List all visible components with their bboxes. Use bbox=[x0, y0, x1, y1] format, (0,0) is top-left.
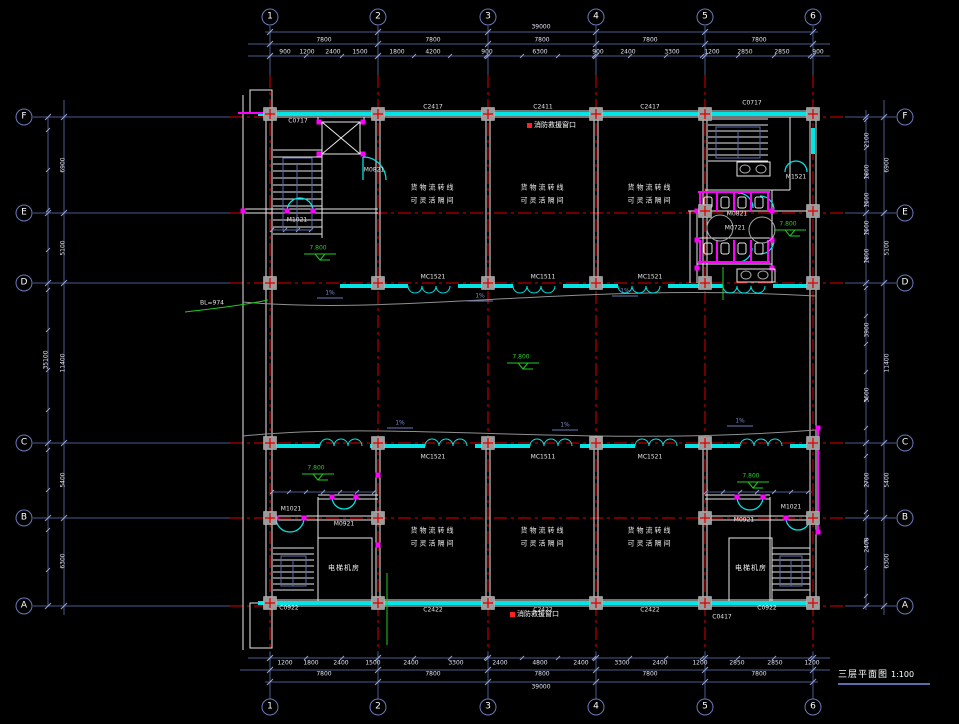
dim-detail-top: 2400 bbox=[620, 49, 635, 56]
grid-bubble-row-E-right: E bbox=[897, 205, 914, 222]
level-value: 7.800 bbox=[512, 354, 529, 361]
grid-bubble-col-1-top: 1 bbox=[262, 9, 279, 26]
fire-rescue-window-label: 消防救援窗口 bbox=[510, 609, 559, 619]
dim-detail-top: 2850 bbox=[774, 49, 789, 56]
dim-detail-bottom: 2400 bbox=[403, 660, 418, 667]
dim-detail-bottom: 2850 bbox=[729, 660, 744, 667]
fixture-layer bbox=[238, 113, 821, 548]
grid-bubble-col-5-top: 5 bbox=[697, 9, 714, 26]
window-tag: C2417 bbox=[423, 104, 442, 111]
room-label: 货物流转线可灵活隔间 bbox=[411, 525, 456, 552]
dim-bay-bottom: 7800 bbox=[316, 671, 331, 678]
dim-detail-bottom: 3300 bbox=[448, 660, 463, 667]
window-tag: C0417 bbox=[712, 614, 731, 621]
dim-detail-top: 2850 bbox=[737, 49, 752, 56]
slope-label: 1% bbox=[395, 420, 405, 427]
window-tag: C0717 bbox=[288, 118, 307, 125]
dim-detail-top: 900 bbox=[279, 49, 290, 56]
window-tag: C2422 bbox=[423, 607, 442, 614]
dim-bay-right: 5400 bbox=[884, 472, 891, 487]
folding-door-tag: MC1511 bbox=[531, 274, 556, 281]
dim-bay-top: 7800 bbox=[425, 37, 440, 44]
dim-bay-right: 5100 bbox=[884, 240, 891, 255]
window-tag: C0717 bbox=[742, 100, 761, 107]
dim-bay-right: 6300 bbox=[884, 553, 891, 568]
dim-detail-top: 3300 bbox=[664, 49, 679, 56]
dim-detail-bottom: 3300 bbox=[614, 660, 629, 667]
level-value: 7.800 bbox=[779, 221, 796, 228]
slope-label: 1% bbox=[475, 293, 485, 300]
dim-bay-top: 7800 bbox=[751, 37, 766, 44]
grid-bubble-row-C-right: C bbox=[897, 435, 914, 452]
dim-detail-bottom: 2400 bbox=[652, 660, 667, 667]
grid-bubble-col-3-top: 3 bbox=[480, 9, 497, 26]
dim-bay-bottom: 7800 bbox=[425, 671, 440, 678]
folding-door-tag: MC1511 bbox=[531, 454, 556, 461]
dim-detail-bottom: 1200 bbox=[804, 660, 819, 667]
machine-room-label: 电梯机房 bbox=[735, 563, 767, 573]
dim-overall-bottom: 39000 bbox=[531, 684, 550, 691]
dim-detail-top: 1200 bbox=[704, 49, 719, 56]
dim-detail-top: 1200 bbox=[299, 49, 314, 56]
dim-bay-top: 7800 bbox=[642, 37, 657, 44]
dim-detail-right: 2700 bbox=[864, 472, 871, 487]
dim-detail-right: 1500 bbox=[864, 192, 871, 207]
folding-door-tag: MC1521 bbox=[638, 454, 663, 461]
grid-bubble-col-1-bottom: 1 bbox=[262, 699, 279, 716]
door-tag: M1021 bbox=[281, 506, 301, 513]
room-label: 货物流转线可灵活隔间 bbox=[411, 182, 456, 209]
slope-label: 1% bbox=[325, 290, 335, 297]
floor-plan-drawing bbox=[0, 0, 959, 724]
dim-detail-bottom: 2850 bbox=[767, 660, 782, 667]
grid-bubble-col-4-top: 4 bbox=[588, 9, 605, 26]
dim-detail-bottom: 1200 bbox=[692, 660, 707, 667]
door-tag: M0821 bbox=[727, 211, 747, 218]
dim-bay-right: 11400 bbox=[884, 353, 891, 372]
drawing-title-block: 三层平面图1:100 bbox=[838, 662, 930, 685]
grid-bubble-row-C-left: C bbox=[16, 435, 33, 452]
dim-bay-top: 7800 bbox=[534, 37, 549, 44]
cad-floor-plan-canvas: 112233445566FFEEDDCCBBAA货物流转线可灵活隔间货物流转线可… bbox=[0, 0, 959, 724]
dim-detail-top: 4200 bbox=[425, 49, 440, 56]
grid-bubble-col-5-bottom: 5 bbox=[697, 699, 714, 716]
grid-bubble-row-A-left: A bbox=[16, 598, 33, 615]
dim-bay-left: 5400 bbox=[60, 472, 67, 487]
dim-bay-left: 11400 bbox=[60, 353, 67, 372]
dim-detail-top: 1800 bbox=[389, 49, 404, 56]
room-label: 货物流转线可灵活隔间 bbox=[628, 525, 673, 552]
window-tag: C2422 bbox=[640, 607, 659, 614]
grid-bubble-row-F-left: F bbox=[16, 109, 33, 126]
window-tag: C2417 bbox=[640, 104, 659, 111]
door-tag: M1021 bbox=[781, 504, 801, 511]
dim-detail-top: 900 bbox=[481, 49, 492, 56]
grid-bubble-col-6-bottom: 6 bbox=[805, 699, 822, 716]
dim-detail-right: 3900 bbox=[864, 322, 871, 337]
dim-detail-bottom: 2400 bbox=[492, 660, 507, 667]
dim-bay-left: 5100 bbox=[60, 240, 67, 255]
grid-bubble-col-4-bottom: 4 bbox=[588, 699, 605, 716]
dim-detail-right: 1500 bbox=[864, 220, 871, 235]
slope-label: 1% bbox=[560, 422, 570, 429]
dim-detail-right: 2400 bbox=[864, 537, 871, 552]
drawing-scale: 1:100 bbox=[891, 670, 914, 679]
dim-detail-bottom: 4800 bbox=[532, 660, 547, 667]
rescue-window-icon bbox=[510, 612, 515, 617]
folding-door-tag: MC1521 bbox=[421, 274, 446, 281]
dim-bay-bottom: 7800 bbox=[534, 671, 549, 678]
window-tag: C2411 bbox=[533, 104, 552, 111]
dim-bay-bottom: 7800 bbox=[642, 671, 657, 678]
window-tag: C0922 bbox=[279, 605, 298, 612]
door-tag: M0821 bbox=[364, 167, 384, 174]
door-tag: M1521 bbox=[786, 174, 806, 181]
dim-bay-right: 6900 bbox=[884, 157, 891, 172]
grid-bubble-col-2-bottom: 2 bbox=[370, 699, 387, 716]
grid-bubble-row-D-left: D bbox=[16, 275, 33, 292]
room-label: 货物流转线可灵活隔间 bbox=[521, 182, 566, 209]
door-tag: M0921 bbox=[734, 517, 754, 524]
dim-detail-top: 900 bbox=[592, 49, 603, 56]
dim-detail-bottom: 1500 bbox=[365, 660, 380, 667]
machine-room-label: 电梯机房 bbox=[328, 563, 360, 573]
folding-door-tag: MC1521 bbox=[421, 454, 446, 461]
slope-label: 1% bbox=[735, 418, 745, 425]
grid-bubble-row-E-left: E bbox=[16, 205, 33, 222]
dim-bay-bottom: 7800 bbox=[751, 671, 766, 678]
dim-detail-bottom: 1800 bbox=[303, 660, 318, 667]
dim-bay-left: 6300 bbox=[60, 553, 67, 568]
title-underline bbox=[838, 683, 930, 685]
grid-bubble-row-A-right: A bbox=[897, 598, 914, 615]
misc-label: BL=974 bbox=[200, 300, 224, 307]
level-value: 7.800 bbox=[742, 473, 759, 480]
dim-bay-left: 6900 bbox=[60, 157, 67, 172]
rescue-window-icon bbox=[527, 123, 532, 128]
grid-bubble-col-2-top: 2 bbox=[370, 9, 387, 26]
grid-bubble-row-D-right: D bbox=[897, 275, 914, 292]
grid-bubble-row-F-right: F bbox=[897, 109, 914, 126]
dim-overall-left: 35100 bbox=[43, 350, 50, 369]
dim-detail-top: 900 bbox=[812, 49, 823, 56]
door-tag: M0921 bbox=[334, 521, 354, 528]
dim-detail-right: 3600 bbox=[864, 387, 871, 402]
grid-bubble-row-B-right: B bbox=[897, 510, 914, 527]
dim-overall-top: 39000 bbox=[531, 24, 550, 31]
door-tag: M1021 bbox=[287, 217, 307, 224]
dim-bay-top: 7800 bbox=[316, 37, 331, 44]
dimension-lines-layer bbox=[33, 26, 896, 699]
window-tag: C0922 bbox=[757, 605, 776, 612]
level-value: 7.800 bbox=[307, 465, 324, 472]
dim-detail-top: 1500 bbox=[352, 49, 367, 56]
door-tag: M0721 bbox=[725, 225, 745, 232]
slope-label: 1% bbox=[620, 288, 630, 295]
dim-detail-top: 2400 bbox=[325, 49, 340, 56]
dim-detail-bottom: 2400 bbox=[573, 660, 588, 667]
folding-door-tag: MC1521 bbox=[638, 274, 663, 281]
dim-detail-top: 6300 bbox=[532, 49, 547, 56]
room-label: 货物流转线可灵活隔间 bbox=[628, 182, 673, 209]
grid-bubble-row-B-left: B bbox=[16, 510, 33, 527]
level-value: 7.800 bbox=[309, 245, 326, 252]
dim-detail-right: 1800 bbox=[864, 164, 871, 179]
dim-detail-bottom: 2400 bbox=[333, 660, 348, 667]
dim-detail-right: 1800 bbox=[864, 248, 871, 263]
dim-detail-right: 2100 bbox=[864, 132, 871, 147]
dim-detail-bottom: 1200 bbox=[277, 660, 292, 667]
grid-bubble-col-3-bottom: 3 bbox=[480, 699, 497, 716]
drawing-title: 三层平面图 bbox=[838, 670, 888, 680]
grid-bubble-col-6-top: 6 bbox=[805, 9, 822, 26]
fire-rescue-window-label: 消防救援窗口 bbox=[527, 120, 576, 130]
room-label: 货物流转线可灵活隔间 bbox=[521, 525, 566, 552]
